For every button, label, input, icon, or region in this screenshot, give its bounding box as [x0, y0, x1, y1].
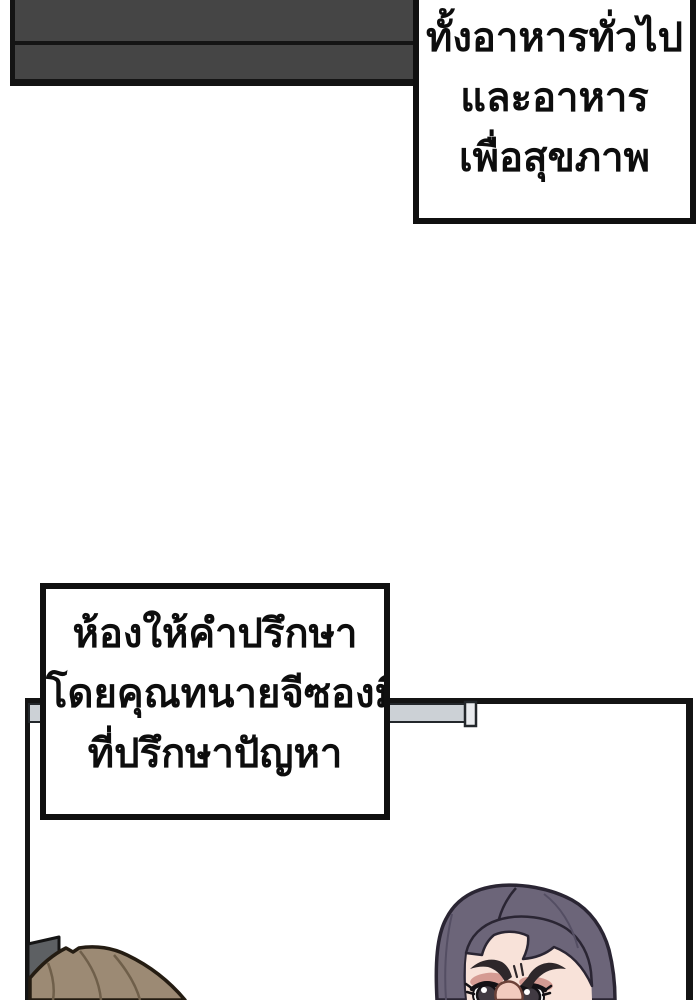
signboard-bottom-border: [10, 79, 416, 86]
speech-bubble-food: ทั้งอาหารทั่วไป และอาหาร เพื่อสุขภาพ: [413, 0, 696, 224]
wall-rail-end-cap: [465, 702, 476, 726]
left-character-hair: [30, 947, 185, 1000]
left-eye-iris: [477, 985, 497, 1000]
right-eye-highlight: [524, 989, 530, 995]
left-eye-highlight: [481, 987, 487, 993]
right-character: [436, 885, 615, 1000]
signboard-divider: [13, 41, 416, 45]
speech-line: ที่ปรึกษาปัญหา: [46, 724, 384, 784]
comic-panel: ทั้งอาหารทั่วไป และอาหาร เพื่อสุขภาพ ห้อ…: [0, 0, 700, 1000]
speech-line: ห้องให้คำปรึกษา: [46, 604, 384, 664]
speech-line: โดยคุณทนายจีซองมี: [46, 664, 384, 724]
wall-right-line: [686, 700, 693, 1000]
speech-bubble-consult: ห้องให้คำปรึกษา โดยคุณทนายจีซองมี ที่ปรึ…: [40, 583, 390, 820]
speech-line: และอาหาร: [419, 68, 690, 128]
signboard: [10, 0, 416, 86]
speech-line: เพื่อสุขภาพ: [419, 128, 690, 188]
speech-line: ทั้งอาหารทั่วไป: [419, 8, 690, 68]
